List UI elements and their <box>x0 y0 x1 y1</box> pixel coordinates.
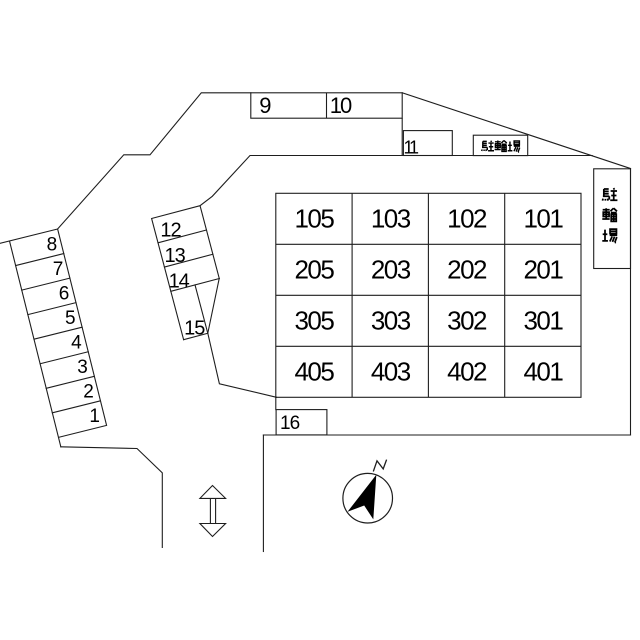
svg-text:105: 105 <box>294 204 334 234</box>
svg-text:6: 6 <box>59 283 70 304</box>
svg-text:205: 205 <box>294 255 334 285</box>
svg-text:1: 1 <box>89 406 100 427</box>
svg-text:12: 12 <box>160 219 181 241</box>
svg-text:7: 7 <box>53 259 64 280</box>
svg-text:103: 103 <box>371 204 411 234</box>
svg-text:14: 14 <box>169 270 190 292</box>
svg-text:401: 401 <box>523 357 563 387</box>
svg-text:102: 102 <box>447 204 487 234</box>
svg-text:8: 8 <box>47 234 58 255</box>
svg-text:2: 2 <box>83 382 94 403</box>
svg-text:3: 3 <box>77 357 88 378</box>
svg-text:302: 302 <box>447 306 487 336</box>
svg-text:10: 10 <box>330 93 352 118</box>
svg-text:202: 202 <box>447 255 487 285</box>
svg-text:13: 13 <box>164 245 185 267</box>
svg-text:5: 5 <box>65 308 76 329</box>
svg-text:15: 15 <box>184 317 205 339</box>
svg-text:101: 101 <box>523 204 563 234</box>
svg-text:405: 405 <box>294 357 334 387</box>
svg-text:403: 403 <box>371 357 411 387</box>
svg-text:203: 203 <box>371 255 411 285</box>
svg-text:16: 16 <box>280 413 300 434</box>
svg-text:301: 301 <box>523 306 563 336</box>
svg-text:4: 4 <box>71 333 82 354</box>
svg-text:305: 305 <box>294 306 334 336</box>
svg-text:303: 303 <box>371 306 411 336</box>
svg-text:201: 201 <box>523 255 563 285</box>
svg-text:9: 9 <box>259 93 271 118</box>
svg-text:402: 402 <box>447 357 487 387</box>
